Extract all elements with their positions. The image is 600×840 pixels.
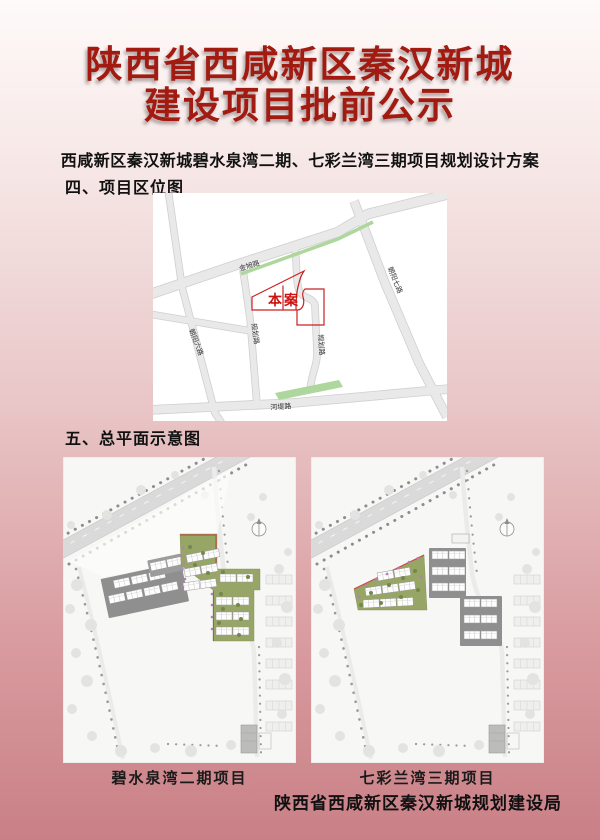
location-map: 本案 金旭路 朝阳七路 规划路 规划路 朝阳六路 河堤路 bbox=[153, 193, 447, 421]
page-title: 陕西省西咸新区秦汉新城 建设项目批前公示 bbox=[0, 44, 600, 126]
parcel-label: 本案 bbox=[268, 292, 300, 308]
page-title-line2: 建设项目批前公示 bbox=[0, 85, 600, 126]
map-background bbox=[153, 193, 447, 421]
caption-bishuiquanwan: 碧水泉湾二期项目 bbox=[63, 767, 296, 788]
site-plan-bishuiquanwan-drawing bbox=[63, 457, 296, 763]
gray-housing-cluster-upper bbox=[429, 548, 466, 598]
location-map-drawing: 本案 金旭路 朝阳七路 规划路 规划路 朝阳六路 河堤路 bbox=[153, 193, 447, 421]
issuing-authority: 陕西省西咸新区秦汉新城规划建设局 bbox=[274, 789, 562, 814]
gray-housing-cluster-lower bbox=[460, 596, 502, 646]
site-plan-bishuiquanwan bbox=[63, 457, 296, 763]
project-subtitle: 西咸新区秦汉新城碧水泉湾二期、七彩兰湾三期项目规划设计方案 bbox=[0, 147, 600, 171]
section-heading-master-plan: 五、总平面示意图 bbox=[65, 425, 201, 449]
page-title-line1: 陕西省西咸新区秦汉新城 bbox=[0, 44, 600, 85]
caption-qicailanwan: 七彩兰湾三期项目 bbox=[311, 767, 544, 788]
site-plan-qicailanwan-drawing bbox=[311, 457, 544, 763]
site-plan-qicailanwan bbox=[311, 457, 544, 763]
outlined-building bbox=[452, 534, 469, 543]
notice-page: 陕西省西咸新区秦汉新城 建设项目批前公示 西咸新区秦汉新城碧水泉湾二期、七彩兰湾… bbox=[0, 0, 600, 840]
